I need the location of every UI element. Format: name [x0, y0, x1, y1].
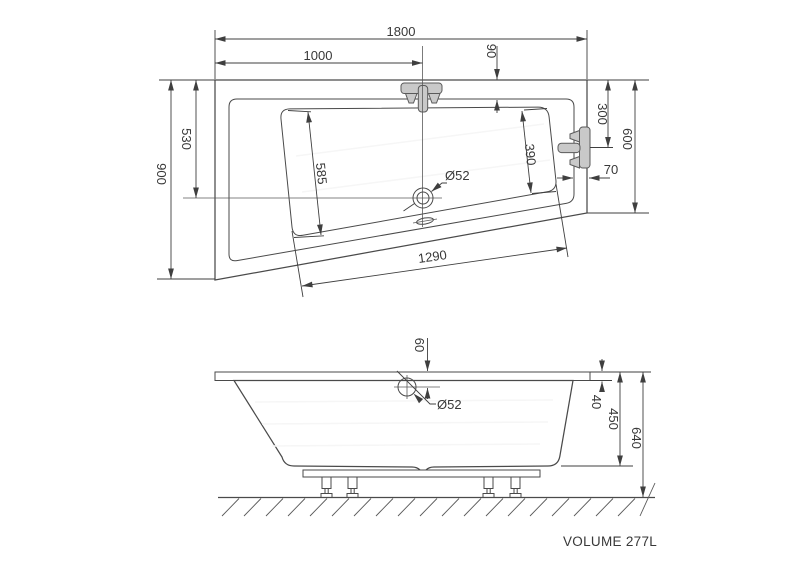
- dim-70-label: 70: [604, 162, 618, 177]
- dim-fixture-offset: 300: [590, 80, 613, 148]
- technical-drawing-sheet: 1800 1000 90 900 530 600: [0, 0, 800, 571]
- dim-585-label: 585: [313, 162, 330, 185]
- dim-900-label: 900: [154, 163, 169, 185]
- tub-body-side: [234, 381, 573, 472]
- plan-drain-dia-label: Ø52: [445, 168, 470, 183]
- dim-faucet-offset: 1000: [215, 48, 423, 63]
- dim-1000-label: 1000: [304, 48, 333, 63]
- dim-basin-left-length: 585: [288, 111, 330, 238]
- overflow-symbol: [394, 375, 440, 399]
- dim-overall-length: 1800: [215, 24, 587, 79]
- bathtub-drawing: 1800 1000 90 900 530 600: [0, 0, 800, 571]
- side-overflow-dia-label: Ø52: [437, 397, 462, 412]
- side-view: 60 Ø52 40 450 640: [215, 338, 655, 516]
- volume-label: VOLUME 277L: [563, 534, 657, 549]
- dim-basin-bottom-length: 1290: [292, 184, 568, 297]
- dim-300-label: 300: [595, 103, 610, 125]
- support-frame: [303, 470, 540, 498]
- dim-drain-offset: 530: [179, 80, 196, 198]
- tub-outline-plan: [215, 80, 587, 280]
- dim-390-label: 390: [522, 143, 539, 166]
- dim-530-label: 530: [179, 128, 194, 150]
- plan-view: 1800 1000 90 900 530 600: [154, 24, 649, 297]
- dim-40-label: 40: [589, 395, 604, 409]
- dim-top-rim-width: 90: [484, 44, 499, 113]
- dim-total-height: 640: [629, 372, 644, 497]
- dim-overflow-offset: 60: [412, 338, 428, 399]
- body-reflections: [255, 400, 553, 446]
- dim-640-label: 640: [629, 427, 644, 449]
- dim-1800-label: 1800: [387, 24, 416, 39]
- dim-90-label: 90: [484, 44, 499, 58]
- dim-60-label: 60: [412, 338, 427, 352]
- dim-basin-right-length: 390: [522, 109, 556, 194]
- dim-600-label: 600: [620, 128, 635, 150]
- dim-450-label: 450: [606, 408, 621, 430]
- basin-reflections: [296, 124, 550, 192]
- side-fixture-icon: [558, 127, 590, 168]
- ground-hatching: [222, 483, 655, 516]
- dim-right-side-width: 600: [587, 80, 649, 213]
- dim-1290-label: 1290: [417, 247, 448, 266]
- dim-overall-width: 900: [154, 80, 215, 279]
- drain-symbol: [183, 46, 442, 227]
